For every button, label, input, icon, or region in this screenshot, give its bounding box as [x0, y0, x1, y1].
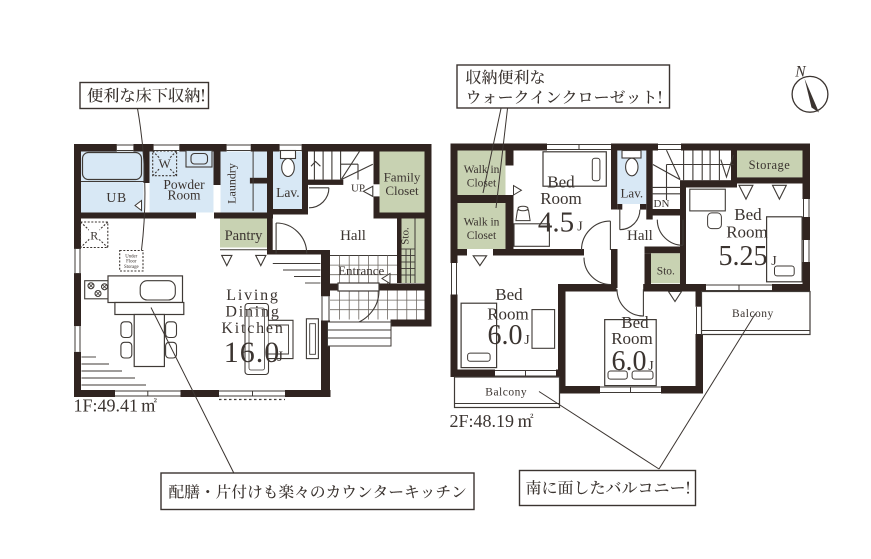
svg-text:Dining: Dining	[225, 304, 280, 321]
svg-text:16.0: 16.0	[224, 336, 281, 369]
svg-text:Hall: Hall	[340, 228, 366, 244]
svg-text:Pantry: Pantry	[225, 228, 264, 244]
svg-text:Laundry: Laundry	[224, 163, 238, 204]
svg-text:Walk in: Walk in	[464, 164, 500, 176]
svg-text:2F:48.19: 2F:48.19	[450, 411, 515, 431]
svg-text:Lav.: Lav.	[620, 186, 643, 201]
svg-text:Room: Room	[726, 223, 768, 242]
svg-text:Kitchen: Kitchen	[221, 320, 284, 337]
svg-text:Entrance: Entrance	[338, 263, 384, 278]
svg-text:4.5: 4.5	[538, 207, 574, 239]
svg-text:Bed: Bed	[495, 285, 523, 304]
svg-text:6.0: 6.0	[612, 346, 647, 377]
svg-text:UB: UB	[106, 190, 127, 205]
svg-text:Room: Room	[167, 188, 201, 203]
svg-text:Storage: Storage	[124, 265, 139, 270]
svg-text:Lav.: Lav.	[276, 185, 300, 200]
svg-text:N: N	[794, 64, 807, 81]
svg-text:J: J	[771, 254, 777, 269]
svg-text:DN: DN	[654, 198, 670, 210]
svg-text:Closet: Closet	[467, 177, 497, 189]
svg-text:Hall: Hall	[627, 228, 653, 244]
svg-text:Bed: Bed	[734, 205, 762, 224]
svg-text:J: J	[524, 333, 530, 348]
svg-text:5.25: 5.25	[719, 241, 768, 272]
svg-text:Sto.: Sto.	[657, 265, 675, 277]
svg-text:Walk in: Walk in	[464, 217, 500, 229]
svg-text:Living: Living	[226, 287, 279, 304]
svg-text:1F:49.41: 1F:49.41	[74, 396, 139, 416]
svg-text:J: J	[648, 359, 654, 374]
svg-text:UP: UP	[351, 183, 365, 195]
svg-text:Storage: Storage	[749, 158, 791, 172]
svg-text:W: W	[158, 156, 171, 171]
svg-text:Balcony: Balcony	[485, 387, 527, 399]
svg-text:J: J	[577, 220, 583, 235]
svg-text:Closet: Closet	[467, 230, 497, 242]
svg-text:R: R	[90, 229, 98, 243]
svg-text:J: J	[277, 349, 283, 365]
svg-text:6.0: 6.0	[488, 320, 523, 351]
svg-text:Closet: Closet	[385, 183, 419, 198]
svg-text:Room: Room	[540, 189, 582, 208]
svg-text:Sto.: Sto.	[400, 227, 412, 245]
